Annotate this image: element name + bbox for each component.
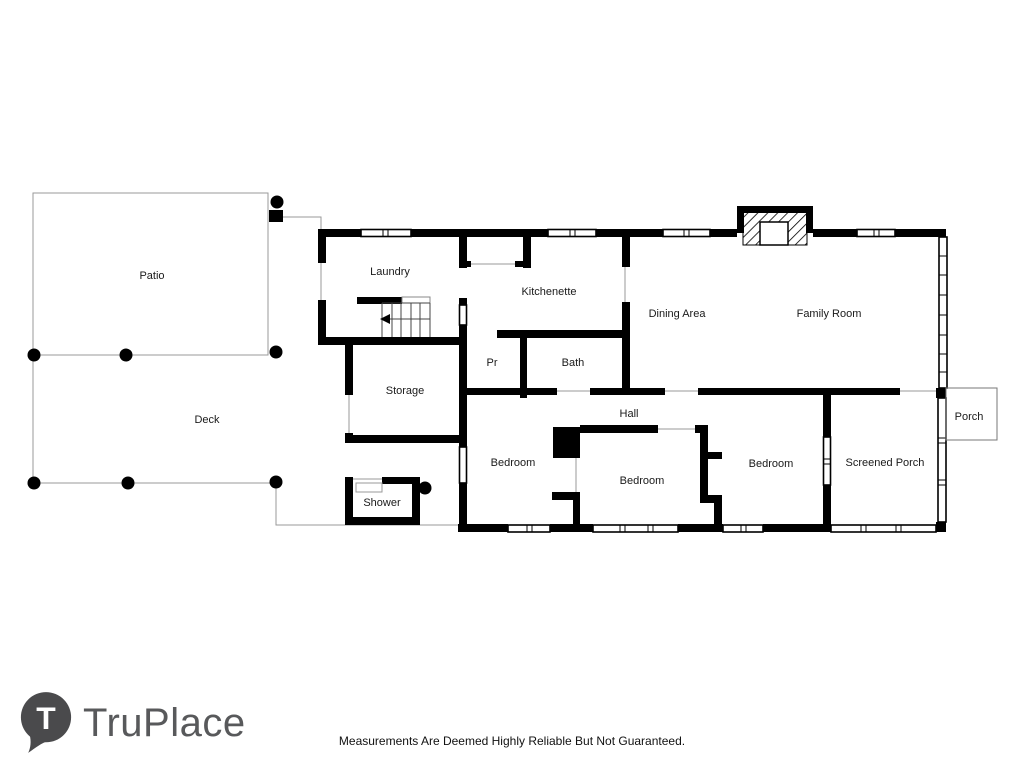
dining-area-label: Dining Area <box>649 308 707 320</box>
room-labels: Patio Deck Laundry Kitchenette Dining Ar… <box>139 266 983 509</box>
deck-label: Deck <box>194 414 220 426</box>
firebox <box>760 222 788 245</box>
logo-letter: T <box>36 700 56 736</box>
staircase <box>357 297 430 337</box>
patio-deck-outline <box>33 193 459 525</box>
patio-gate-post <box>269 210 283 222</box>
screened-porch-label: Screened Porch <box>846 457 925 469</box>
floorplan-page: { "branding": { "logo_letter": "T", "log… <box>0 0 1024 768</box>
shower-pan <box>356 483 382 492</box>
powder-room-label: Pr <box>487 357 498 369</box>
disclaimer-text: Measurements Are Deemed Highly Reliable … <box>0 734 1024 748</box>
bedroom-left-label: Bedroom <box>491 457 536 469</box>
bedroom-right-label: Bedroom <box>749 458 794 470</box>
kitchenette-label: Kitchenette <box>521 286 576 298</box>
family-room-label: Family Room <box>797 308 862 320</box>
porch-label: Porch <box>955 411 984 423</box>
patio-label: Patio <box>139 270 164 282</box>
bath-label: Bath <box>562 357 585 369</box>
shower-label: Shower <box>363 497 401 509</box>
laundry-label: Laundry <box>370 266 410 278</box>
stair-railing <box>402 297 430 303</box>
bedroom-middle-label: Bedroom <box>620 475 665 487</box>
hall-label: Hall <box>620 408 639 420</box>
floorplan-drawing: Patio Deck Laundry Kitchenette Dining Ar… <box>0 0 1024 768</box>
storage-label: Storage <box>386 385 425 397</box>
fireplace <box>737 206 813 245</box>
